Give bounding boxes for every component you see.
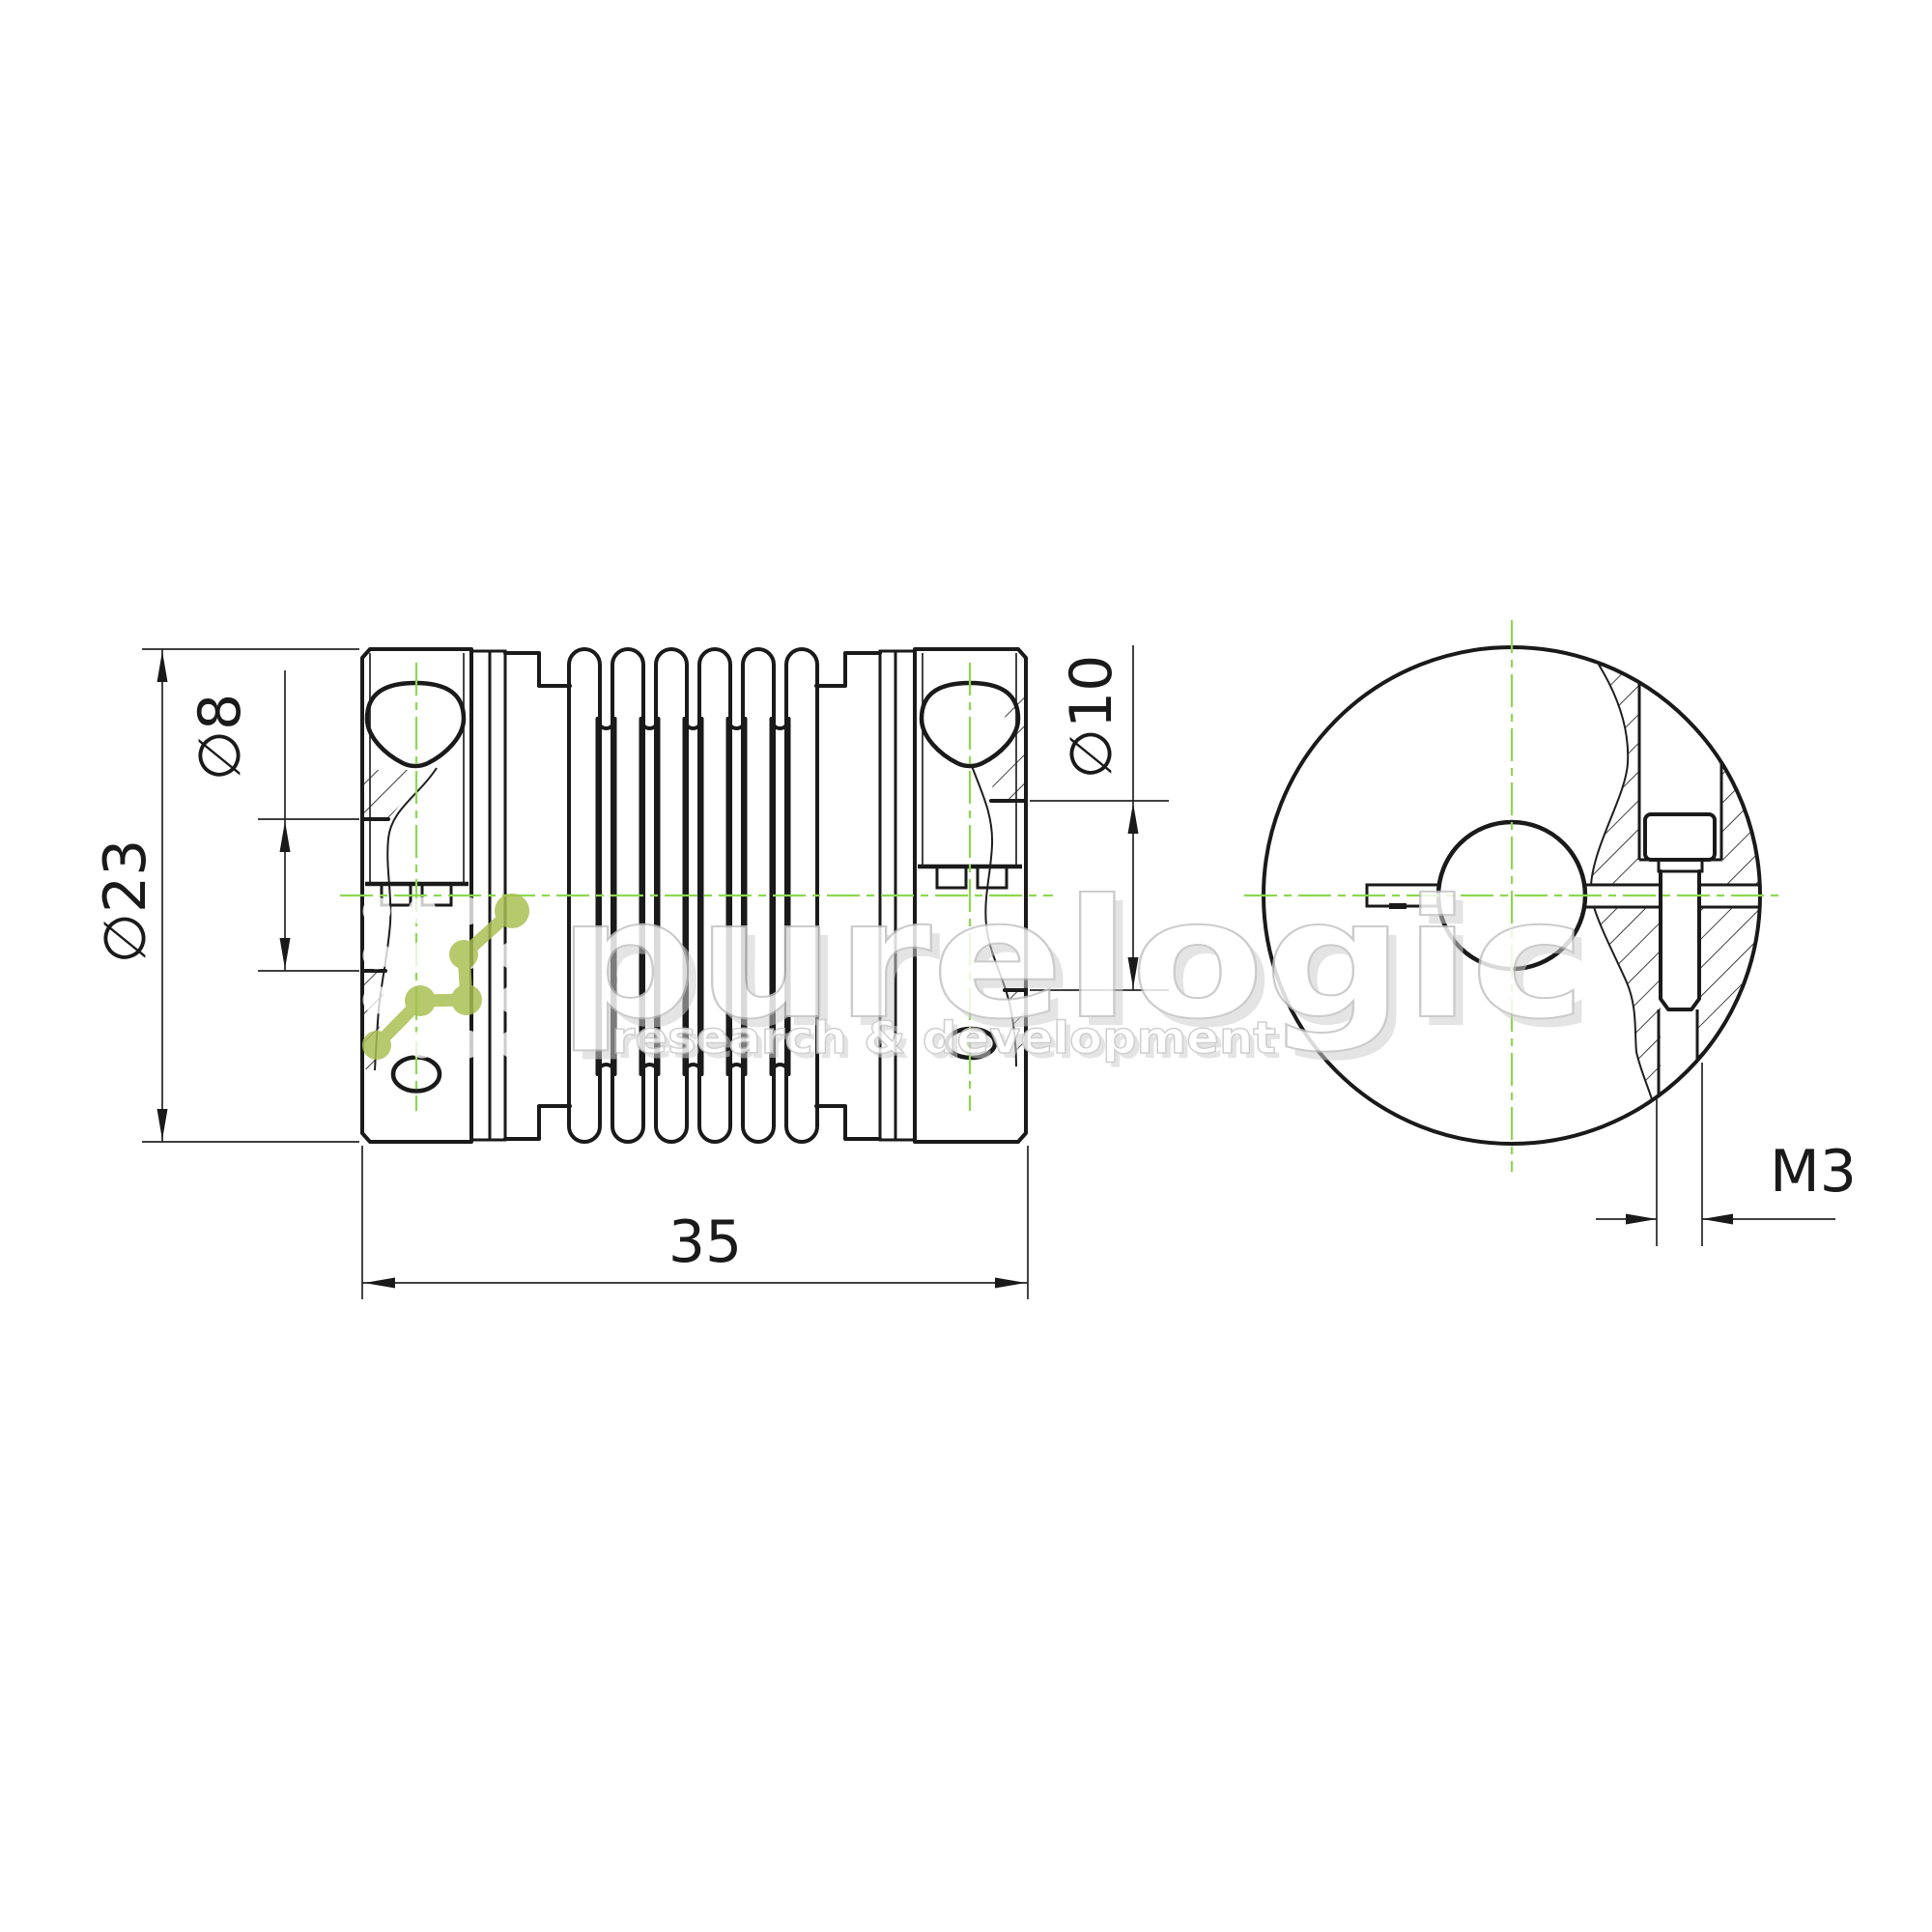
halftone-dot xyxy=(499,1031,527,1059)
logo-node xyxy=(405,985,436,1016)
dim-label-outer-diameter: ∅23 xyxy=(92,839,159,964)
halftone-dot xyxy=(363,897,391,925)
dim-label-right-bore: ∅10 xyxy=(1058,655,1125,780)
arrowhead xyxy=(1626,1214,1657,1225)
arrowhead xyxy=(1702,1214,1733,1225)
logo-node xyxy=(495,894,529,928)
halftone-dot xyxy=(409,897,437,925)
halftone-dot xyxy=(499,986,527,1014)
screw-shank xyxy=(1661,871,1699,1009)
cad-drawing-canvas: ∅23 ∅8 ∅10 35 xyxy=(0,0,1932,1932)
section-hatching xyxy=(1591,665,1759,1099)
bellows-end-step xyxy=(816,653,880,686)
halftone-dot xyxy=(409,942,437,970)
screw-head xyxy=(1645,814,1715,860)
bellows-end-step xyxy=(816,1106,880,1139)
logo-node xyxy=(451,984,482,1015)
hatch-patch xyxy=(362,770,431,819)
arrowhead xyxy=(157,1109,168,1140)
logo-node xyxy=(449,940,478,969)
dim-label-m3: M3 xyxy=(1770,1138,1857,1206)
arrowhead xyxy=(364,1278,395,1289)
bellows-end-step xyxy=(505,1106,570,1139)
dim-length: 35 xyxy=(362,1146,1028,1299)
halftone-dot xyxy=(363,986,391,1014)
dim-left-bore: ∅8 xyxy=(186,670,359,971)
hatch-patch xyxy=(1721,763,1759,885)
arrowhead xyxy=(280,938,291,969)
arrowhead xyxy=(280,821,291,852)
tagline-text: research & development xyxy=(611,1012,1276,1064)
halftone-dot xyxy=(499,942,527,970)
dim-label-left-bore: ∅8 xyxy=(186,694,254,781)
dim-m3: M3 xyxy=(1596,1063,1857,1246)
purelogic-logo-links xyxy=(377,911,512,1045)
arrowhead xyxy=(995,1278,1026,1289)
halftone-dot xyxy=(454,897,482,925)
bellows-end-step xyxy=(505,653,570,686)
dim-label-length: 35 xyxy=(668,1208,742,1276)
hatch-patch xyxy=(1697,907,1758,1060)
halftone-dot xyxy=(363,942,391,970)
halftone-dot xyxy=(409,1031,437,1059)
arrowhead xyxy=(157,651,168,682)
arrowhead xyxy=(1128,803,1139,834)
halftone-dot xyxy=(454,1031,482,1059)
logo-node xyxy=(362,1031,391,1060)
hatch-patch xyxy=(1594,907,1661,1099)
